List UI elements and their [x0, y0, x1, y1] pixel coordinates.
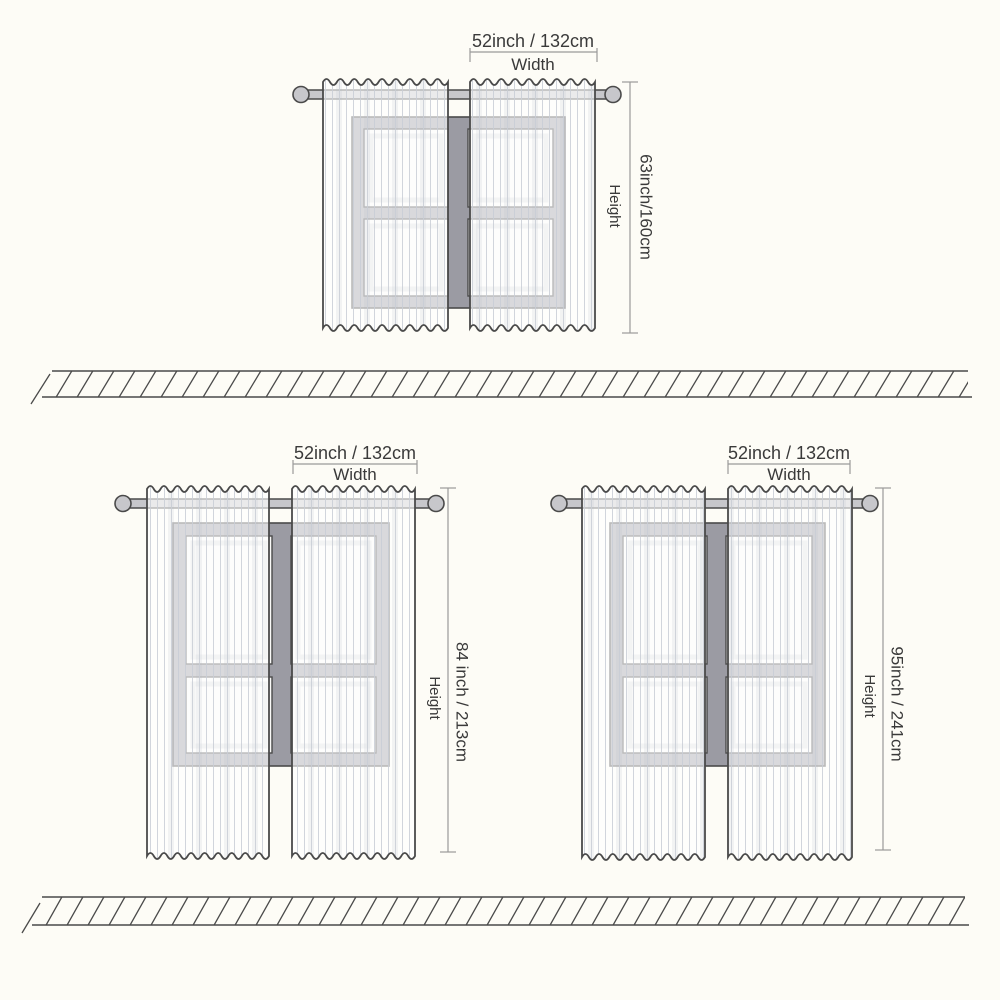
diagram-artwork	[115, 460, 456, 859]
hatch-line	[402, 895, 420, 927]
hatch-line	[171, 895, 189, 927]
hatch-line	[297, 895, 315, 927]
hatch-line	[444, 895, 462, 927]
width-word-label: Width	[767, 465, 810, 484]
hatch-line	[213, 895, 231, 927]
diagram-artwork	[293, 48, 638, 333]
height-value-label: 84 inch / 213cm	[453, 642, 472, 762]
hatch-line	[370, 369, 388, 399]
hatch-line	[643, 369, 661, 399]
hatch-line	[790, 369, 808, 399]
hatch-line	[391, 369, 409, 399]
hatch-line	[895, 369, 913, 399]
panel-stripe-texture	[582, 486, 705, 860]
size-diagram-95inch: 52inch / 132cm Width 95inch / 241cm Heig…	[551, 443, 907, 860]
hatch-line	[528, 895, 546, 927]
curtain-panel-right	[728, 486, 852, 860]
hatch-line	[97, 369, 115, 399]
hatch-line	[265, 369, 283, 399]
hatch-line	[349, 369, 367, 399]
page: { "colors": { "bg": "#fdfcf6", "ink": "#…	[0, 0, 1000, 1000]
width-value-label: 52inch / 132cm	[472, 31, 594, 51]
hatch-line	[717, 895, 735, 927]
rod-finial-left	[293, 87, 309, 103]
hatch-line	[475, 369, 493, 399]
hatch-lines	[24, 895, 966, 927]
hatch-line	[570, 895, 588, 927]
floor-hatch-band	[22, 895, 969, 933]
hatch-line	[948, 895, 966, 927]
hatch-line	[591, 895, 609, 927]
hatch-line	[885, 895, 903, 927]
hatch-line	[381, 895, 399, 927]
hatch-line	[423, 895, 441, 927]
hatch-line	[465, 895, 483, 927]
rod-finial-right	[428, 496, 444, 512]
hatch-line	[727, 369, 745, 399]
hatch-line	[664, 369, 682, 399]
hatch-line	[685, 369, 703, 399]
hatch-line	[738, 895, 756, 927]
height-word-label: Height	[861, 674, 878, 718]
hatch-line	[559, 369, 577, 399]
hatch-line	[622, 369, 640, 399]
hatch-line	[507, 895, 525, 927]
hatch-line	[244, 369, 262, 399]
hatch-line	[927, 895, 945, 927]
hatch-line	[339, 895, 357, 927]
hatch-lines	[34, 369, 976, 399]
hatch-line	[412, 369, 430, 399]
hatch-line	[192, 895, 210, 927]
hatch-line	[780, 895, 798, 927]
hatch-line	[916, 369, 934, 399]
hatch-line	[538, 369, 556, 399]
hatch-line	[853, 369, 871, 399]
hatch-line	[318, 895, 336, 927]
rod-finial-right	[605, 87, 621, 103]
hatch-line	[832, 369, 850, 399]
hatch-line	[181, 369, 199, 399]
hatch-line	[76, 369, 94, 399]
stray-hatch-line	[31, 374, 50, 404]
hatch-line	[139, 369, 157, 399]
width-word-label: Width	[333, 465, 376, 484]
hatch-line	[675, 895, 693, 927]
hatch-line	[118, 369, 136, 399]
hatch-line	[580, 369, 598, 399]
width-value-label: 52inch / 132cm	[728, 443, 850, 463]
hatch-line	[937, 369, 955, 399]
hatch-line	[45, 895, 63, 927]
curtain-panel-left	[582, 486, 705, 860]
rod-finial-left	[115, 496, 131, 512]
panel-stripe-texture	[292, 486, 415, 859]
hatch-line	[822, 895, 840, 927]
curtain-size-diagram-illustration: 52inch / 132cm Width 63inch/160cm Height…	[0, 0, 1000, 1000]
height-value-label: 63inch/160cm	[637, 154, 656, 260]
hatch-line	[24, 895, 42, 927]
hatch-line	[55, 369, 73, 399]
curtain-panel-left	[323, 79, 448, 331]
hatch-line	[811, 369, 829, 399]
hatch-line	[87, 895, 105, 927]
panel-stripe-texture	[323, 79, 448, 331]
width-word-label: Width	[511, 55, 554, 74]
hatch-line	[150, 895, 168, 927]
height-word-label: Height	[426, 676, 443, 720]
hatch-line	[801, 895, 819, 927]
hatch-line	[864, 895, 882, 927]
hatch-line	[958, 369, 976, 399]
rod-finial-right	[862, 496, 878, 512]
diagram-artwork	[551, 460, 891, 860]
size-diagram-84inch: 52inch / 132cm Width 84 inch / 213cm Hei…	[115, 443, 472, 859]
hatch-line	[108, 895, 126, 927]
width-value-label: 52inch / 132cm	[294, 443, 416, 463]
hatch-line	[486, 895, 504, 927]
hatch-line	[706, 369, 724, 399]
height-value-label: 95inch / 241cm	[888, 646, 907, 761]
hatch-line	[517, 369, 535, 399]
hatch-line	[276, 895, 294, 927]
hatch-line	[129, 895, 147, 927]
hatch-line	[255, 895, 273, 927]
hatch-line	[654, 895, 672, 927]
hatch-line	[307, 369, 325, 399]
hatch-line	[549, 895, 567, 927]
hatch-line	[202, 369, 220, 399]
hatch-line	[234, 895, 252, 927]
hatch-line	[433, 369, 451, 399]
hatch-line	[496, 369, 514, 399]
hatch-line	[612, 895, 630, 927]
hatch-line	[454, 369, 472, 399]
panel-stripe-texture	[728, 486, 852, 860]
hatch-line	[759, 895, 777, 927]
hatch-line	[696, 895, 714, 927]
hatch-line	[66, 895, 84, 927]
hatch-line	[633, 895, 651, 927]
panel-stripe-texture	[147, 486, 269, 859]
hatch-line	[360, 895, 378, 927]
hatch-line	[874, 369, 892, 399]
hatch-line	[769, 369, 787, 399]
height-dimension	[622, 82, 638, 333]
hatch-line	[843, 895, 861, 927]
hatch-line	[906, 895, 924, 927]
curtain-panel-right	[470, 79, 595, 331]
hatch-line	[223, 369, 241, 399]
panel-stripe-texture	[470, 79, 595, 331]
hatch-line	[328, 369, 346, 399]
height-word-label: Height	[606, 184, 623, 228]
hatch-line	[160, 369, 178, 399]
stray-hatch-line	[22, 903, 40, 933]
hatch-line	[286, 369, 304, 399]
hatch-line	[601, 369, 619, 399]
floor-hatch-band	[31, 369, 976, 404]
size-diagram-63inch: 52inch / 132cm Width 63inch/160cm Height	[293, 31, 656, 333]
rod-finial-left	[551, 496, 567, 512]
curtain-panel-right	[292, 486, 415, 859]
curtain-panel-left	[147, 486, 269, 859]
hatch-line	[748, 369, 766, 399]
